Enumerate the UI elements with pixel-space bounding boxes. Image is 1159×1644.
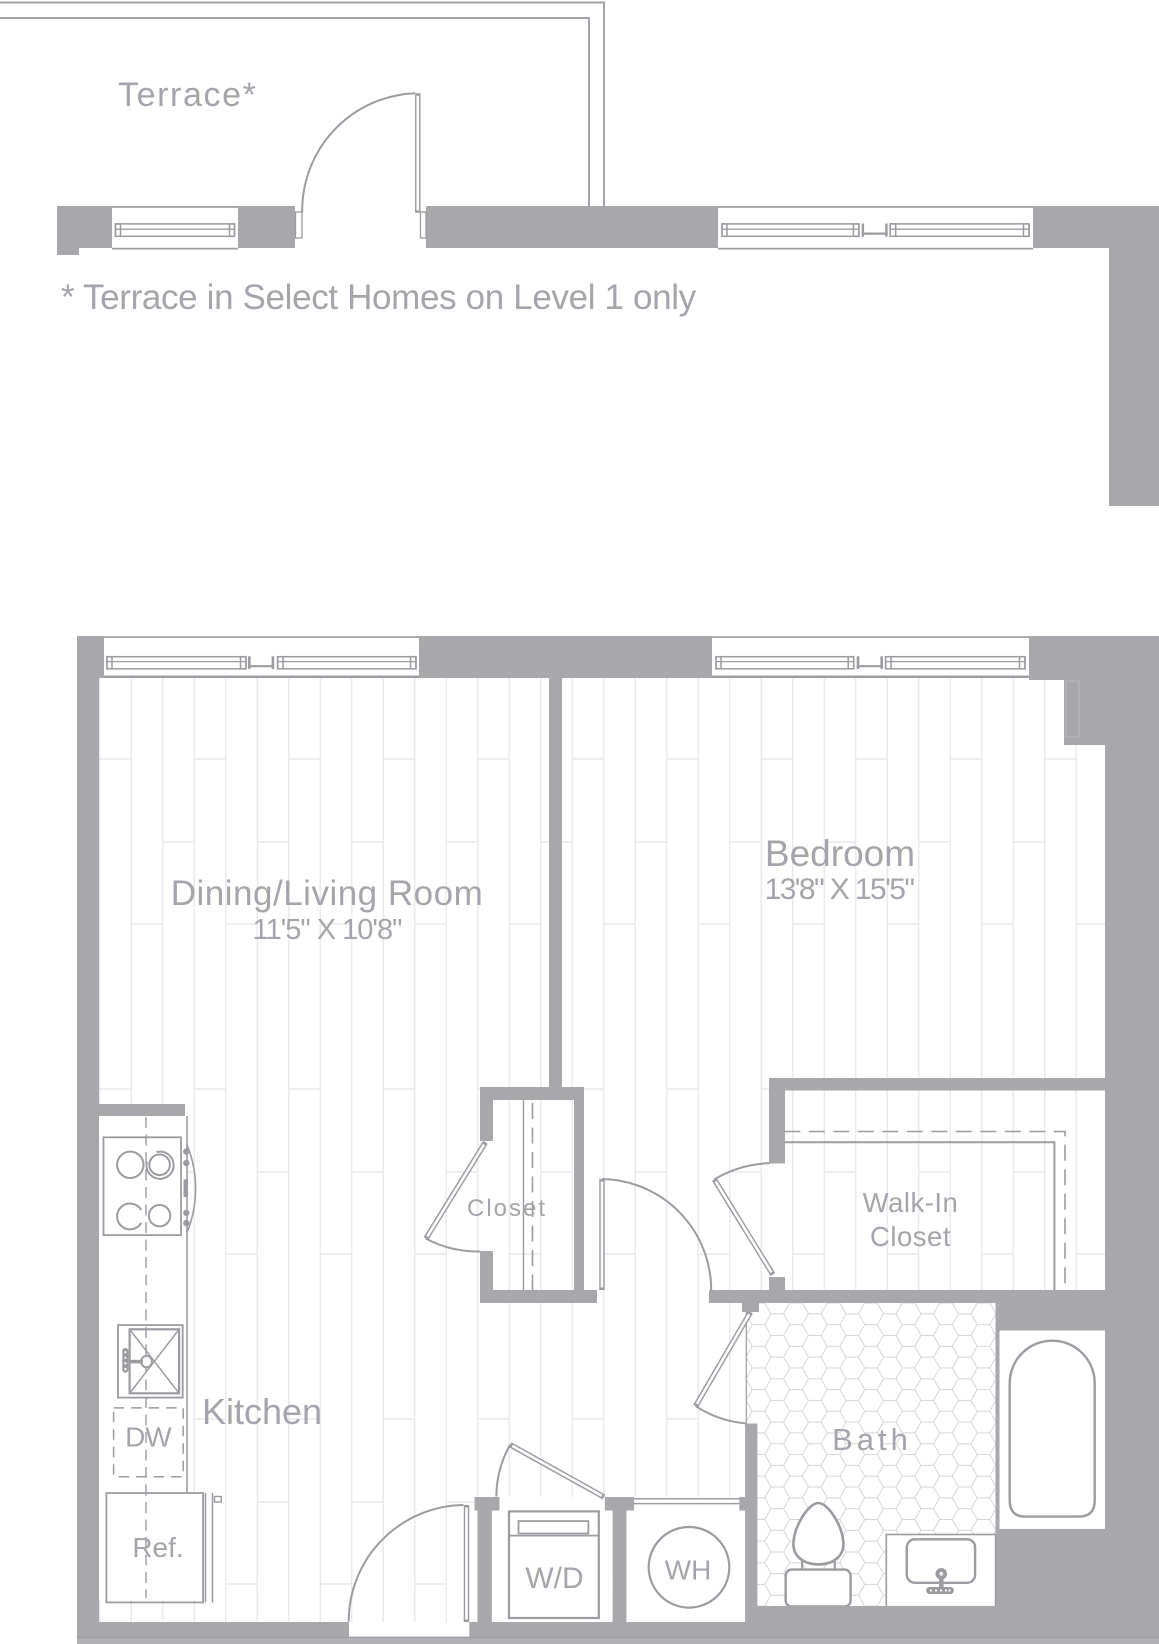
svg-text:DW: DW (125, 1422, 172, 1453)
svg-text:Ref.: Ref. (132, 1532, 183, 1563)
svg-text:11'5" X 10'8": 11'5" X 10'8" (253, 914, 402, 946)
svg-text:Closet: Closet (467, 1195, 547, 1222)
svg-text:Terrace*: Terrace* (118, 76, 257, 114)
svg-text:WH: WH (665, 1555, 712, 1586)
svg-text:Dining/Living Room: Dining/Living Room (171, 874, 483, 913)
svg-text:W/D: W/D (525, 1562, 583, 1595)
svg-text:13'8" X 15'5": 13'8" X 15'5" (765, 873, 915, 906)
svg-text:* Terrace in Select Homes on L: * Terrace in Select Homes on Level 1 onl… (61, 278, 697, 317)
svg-text:Bedroom: Bedroom (765, 833, 915, 874)
svg-text:Bath: Bath (832, 1422, 912, 1457)
svg-text:Closet: Closet (870, 1221, 951, 1252)
svg-text:Walk-In: Walk-In (863, 1187, 959, 1218)
svg-text:Kitchen: Kitchen (202, 1391, 322, 1432)
